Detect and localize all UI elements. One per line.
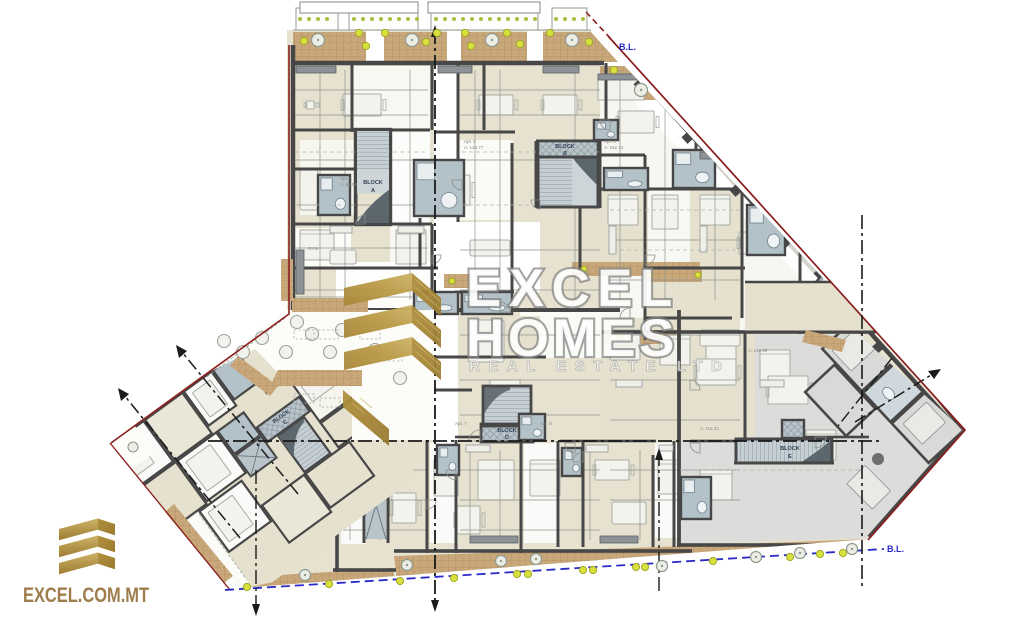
svg-text:A: A: [371, 188, 375, 194]
svg-text:BLOCK: BLOCK: [363, 180, 383, 186]
svg-text:Apt. 7: Apt. 7: [455, 421, 467, 426]
svg-text:Apt. 6: Apt. 6: [604, 139, 616, 144]
svg-text:A: 148.77: A: 148.77: [464, 145, 484, 150]
svg-text:A: 115.22: A: 115.22: [700, 426, 719, 431]
svg-text:Apt. 5: Apt. 5: [340, 176, 352, 181]
svg-text:B.L.: B.L.: [887, 544, 904, 554]
svg-text:EXCEL.COM.MT: EXCEL.COM.MT: [23, 584, 149, 607]
svg-text:A: 98.04: A: 98.04: [340, 182, 357, 187]
svg-text:B.L.: B.L.: [619, 42, 636, 52]
svg-text:BLOCK: BLOCK: [497, 428, 517, 434]
svg-text:REAL ESTATE LTD: REAL ESTATE LTD: [469, 358, 730, 375]
svg-text:BLOCK: BLOCK: [555, 144, 575, 150]
svg-text:GYM: GYM: [308, 246, 319, 251]
svg-text:BLOCK: BLOCK: [780, 446, 800, 452]
svg-text:Apt. 8: Apt. 8: [540, 421, 552, 426]
svg-text:A: 139.39: A: 139.39: [748, 348, 768, 353]
svg-text:A: 152.74: A: 152.74: [604, 145, 624, 150]
svg-text:Apt. 5: Apt. 5: [464, 139, 476, 144]
svg-text:D: D: [505, 435, 509, 441]
svg-text:E: E: [788, 454, 792, 460]
